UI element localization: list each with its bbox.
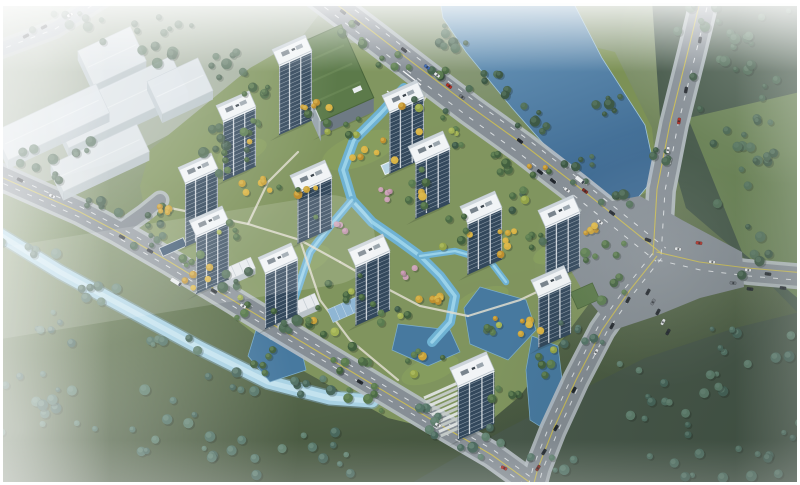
fog-band xyxy=(0,240,330,300)
atmosphere-haze xyxy=(0,0,800,485)
scene-svg xyxy=(0,0,800,485)
aerial-masterplan-render xyxy=(0,0,800,485)
